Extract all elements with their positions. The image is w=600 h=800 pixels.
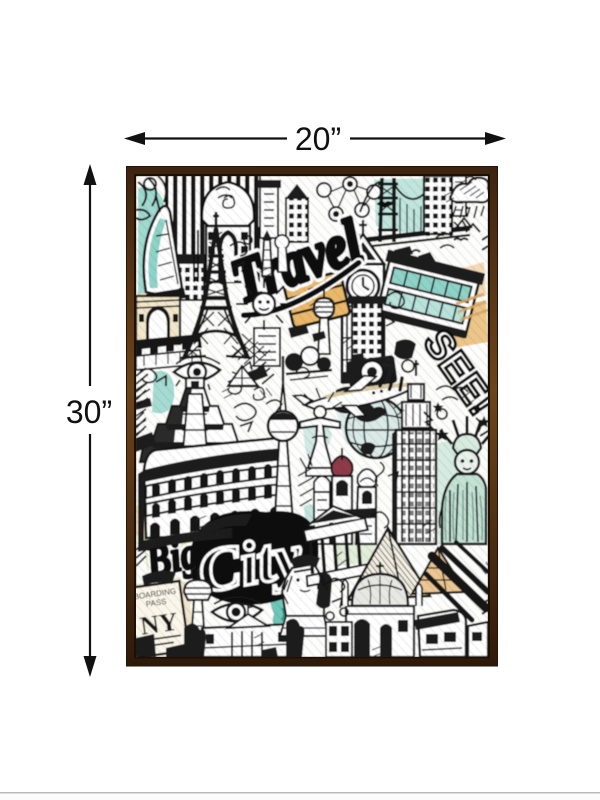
svg-text:30”: 30” (66, 394, 112, 430)
svg-text:20”: 20” (295, 121, 341, 157)
